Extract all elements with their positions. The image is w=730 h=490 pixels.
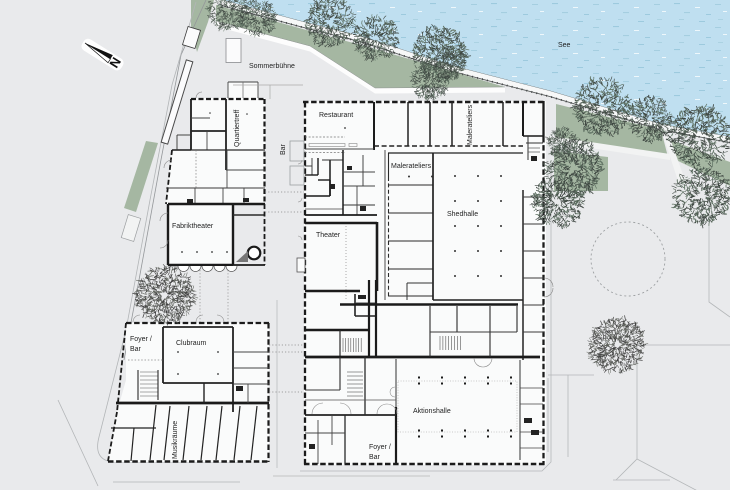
svg-text:Quartiertreff: Quartiertreff (234, 110, 241, 147)
svg-text:Malerateliers: Malerateliers (391, 163, 432, 170)
svg-text:Malerateliers: Malerateliers (467, 104, 474, 145)
svg-text:Sommerbühne: Sommerbühne (249, 63, 295, 70)
svg-text:Bar: Bar (369, 454, 381, 461)
svg-text:Clubraum: Clubraum (176, 340, 207, 347)
svg-text:See: See (558, 42, 571, 49)
svg-text:Aktionshalle: Aktionshalle (413, 408, 451, 415)
svg-text:Restaurant: Restaurant (319, 112, 353, 119)
svg-text:Shedhalle: Shedhalle (447, 211, 478, 218)
svg-text:Fabriktheater: Fabriktheater (172, 223, 214, 230)
svg-text:Theater: Theater (316, 232, 341, 239)
svg-text:Bar: Bar (130, 346, 142, 353)
svg-text:Bar: Bar (280, 143, 287, 155)
svg-text:Musikräume: Musikräume (172, 421, 179, 459)
svg-text:Foyer /: Foyer / (130, 336, 152, 343)
svg-text:Foyer /: Foyer / (369, 444, 391, 451)
